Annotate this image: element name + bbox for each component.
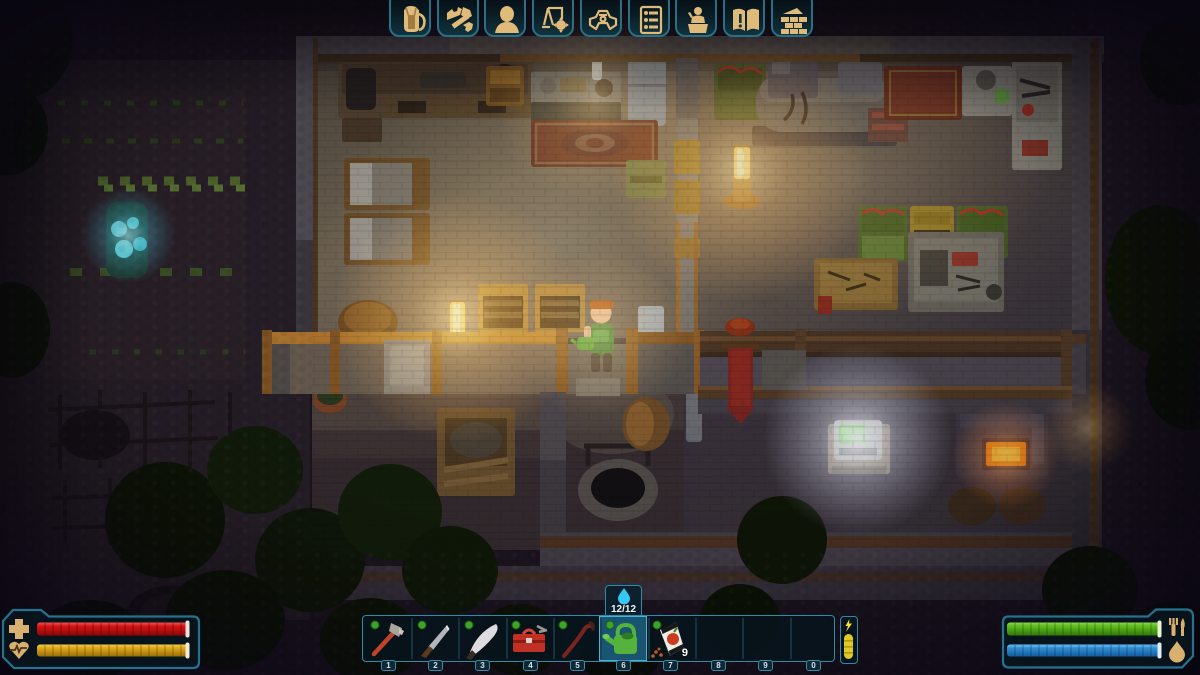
svg-text:9: 9 bbox=[682, 647, 688, 659]
